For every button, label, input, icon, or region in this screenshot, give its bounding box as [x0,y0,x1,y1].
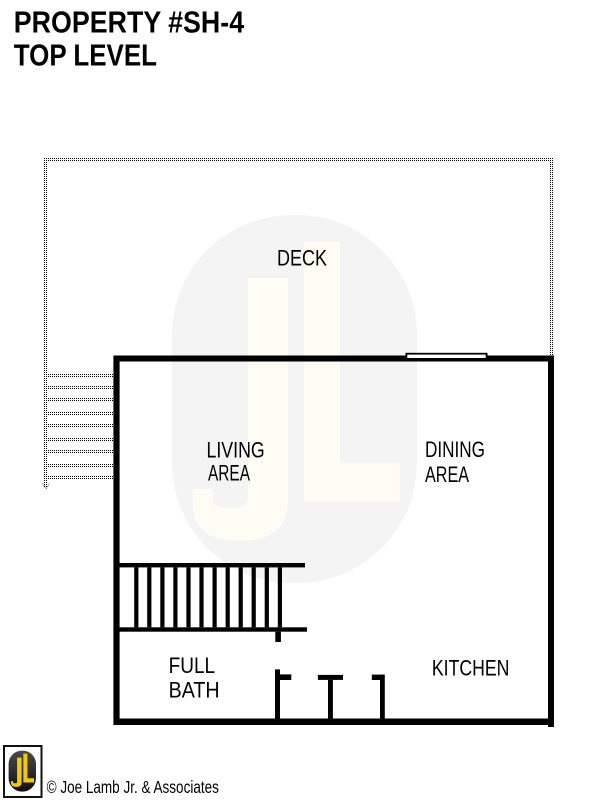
svg-text:FULL: FULL [169,653,216,678]
svg-text:KITCHEN: KITCHEN [432,656,510,681]
svg-text:PROPERTY #SH-4: PROPERTY #SH-4 [14,5,244,39]
svg-text:AREA: AREA [425,462,469,487]
svg-text:DINING: DINING [425,437,485,462]
svg-text:© Joe Lamb Jr. & Associates: © Joe Lamb Jr. & Associates [47,777,220,797]
svg-text:TOP LEVEL: TOP LEVEL [14,39,157,73]
svg-text:LIVING: LIVING [207,437,265,462]
svg-text:DECK: DECK [277,246,327,271]
svg-text:AREA: AREA [208,461,250,486]
svg-text:BATH: BATH [169,678,220,703]
